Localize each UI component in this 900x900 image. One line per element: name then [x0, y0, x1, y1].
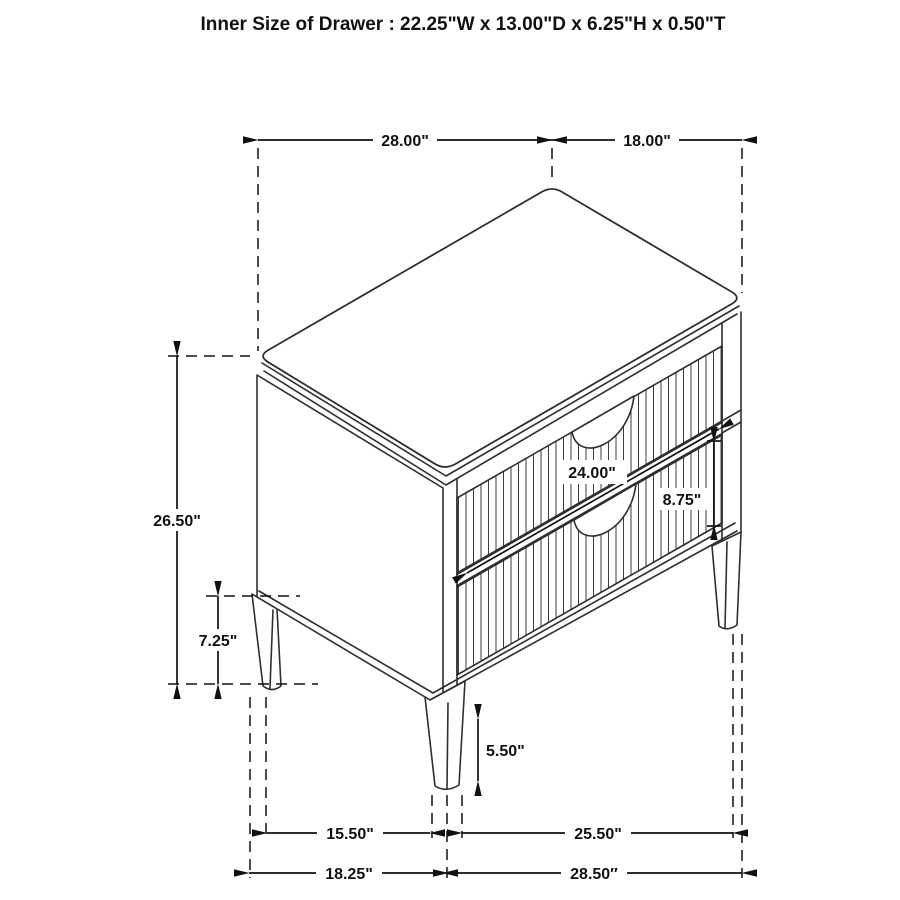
label-top-width: 28.00" [381, 133, 429, 150]
diagram-title: Inner Size of Drawer : 22.25"W x 13.00"D… [201, 14, 726, 35]
label-floor-depth: 18.25" [325, 866, 373, 883]
label-leg-span-depth: 15.50" [326, 826, 374, 843]
label-top-depth: 18.00" [623, 133, 671, 150]
leg-right [712, 532, 741, 629]
label-leg-span-width: 25.50" [574, 826, 622, 843]
diagram-page: Inner Size of Drawer : 22.25"W x 13.00"D… [0, 0, 900, 900]
label-base-height: 7.25" [199, 633, 238, 650]
nightstand-dimension-diagram: Inner Size of Drawer : 22.25"W x 13.00"D… [0, 0, 900, 900]
label-drawer-height: 8.75" [663, 492, 702, 509]
label-drawer-width: 24.00" [568, 465, 616, 482]
label-leg-height: 5.50" [486, 743, 525, 760]
leg-back-left [252, 594, 281, 690]
label-floor-width: 28.50″ [570, 866, 618, 883]
label-overall-height: 26.50" [153, 513, 201, 530]
